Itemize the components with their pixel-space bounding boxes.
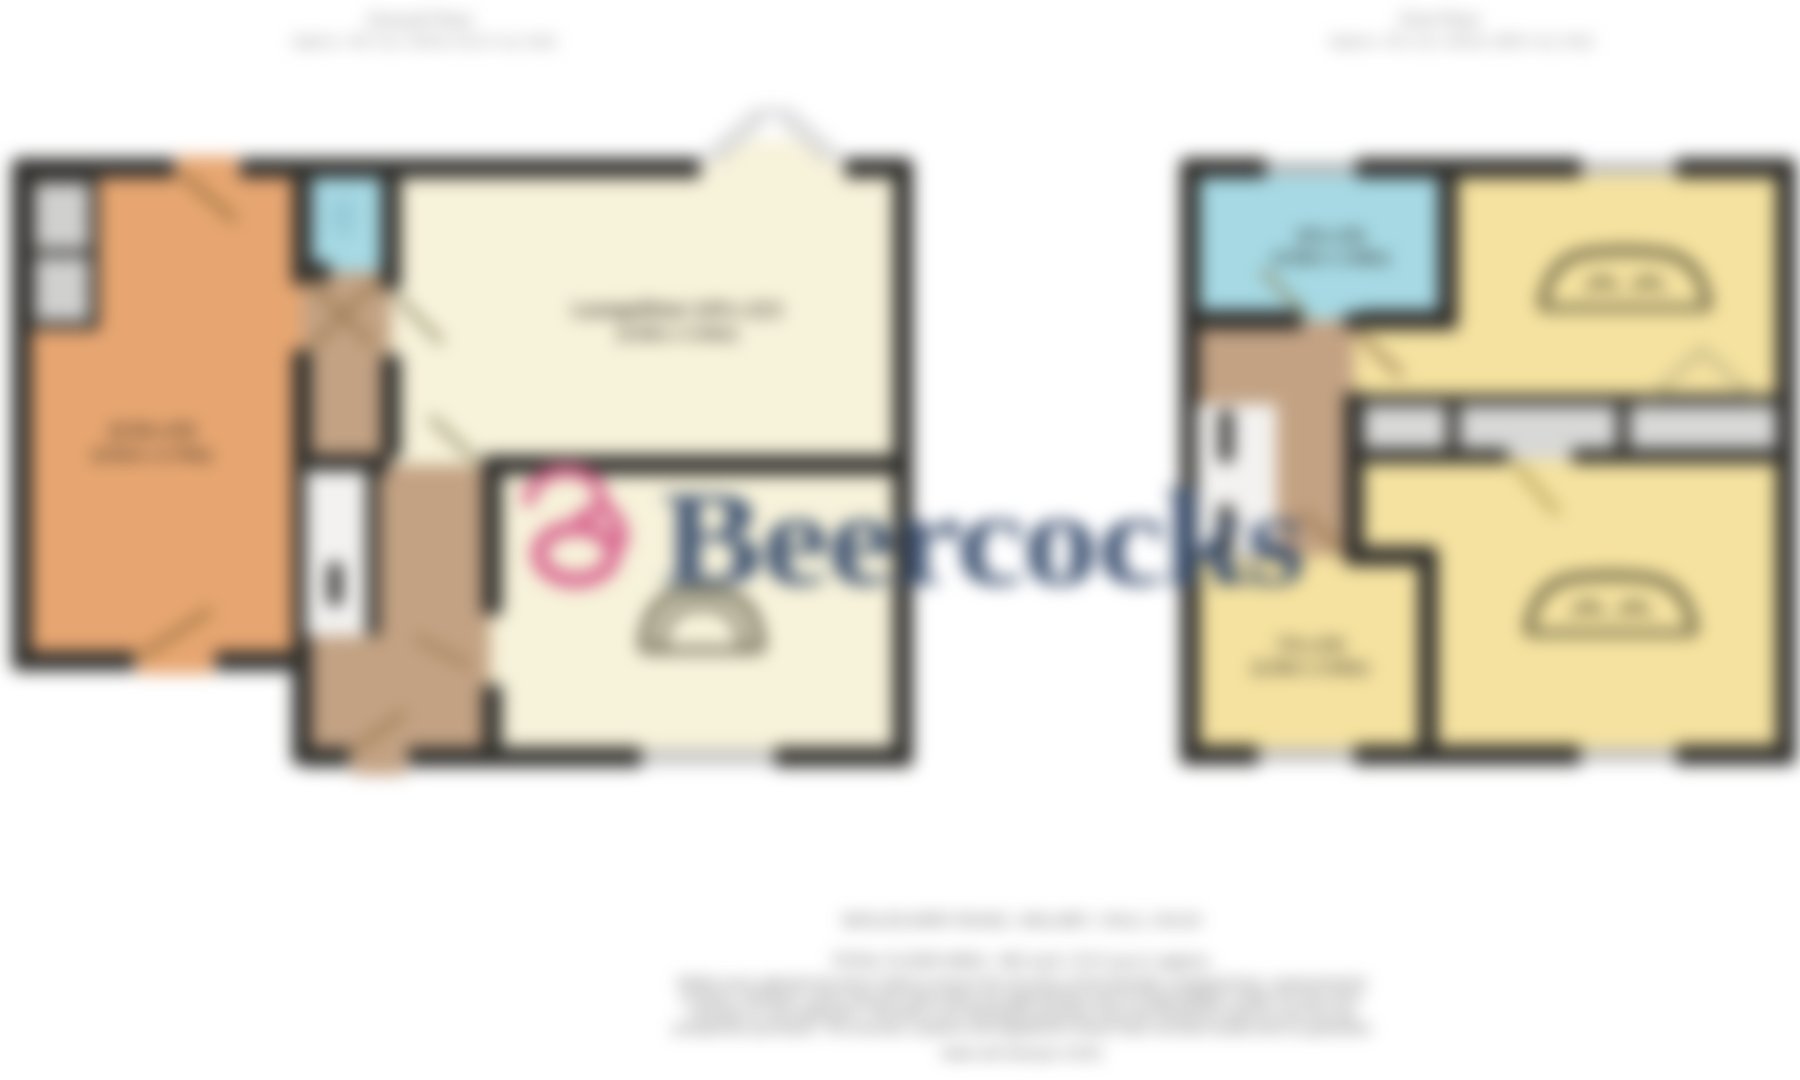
svg-text:(2.06m x 1.68m): (2.06m x 1.68m) [1273, 250, 1388, 267]
svg-text:(3.61m x 2.79m): (3.61m x 2.79m) [92, 447, 211, 464]
svg-text:Made with Metropix ©2025: Made with Metropix ©2025 [942, 1046, 1103, 1061]
svg-text:Beercocks: Beercocks [661, 464, 1303, 614]
svg-text:prospective purchaser. The ser: prospective purchaser. The services, sys… [673, 1021, 1371, 1037]
svg-text:6'9 x 5'6: 6'9 x 5'6 [1298, 226, 1365, 246]
svg-text:Approx. 38.3 sq. metres (412.5: Approx. 38.3 sq. metres (412.5 sq. feet) [292, 33, 556, 50]
svg-text:Ground Floor: Ground Floor [367, 10, 473, 30]
svg-text:Approx. 36.2 sq. metres (389.3: Approx. 36.2 sq. metres (389.3 sq. feet) [1329, 33, 1593, 50]
svg-text:of doors, windows, rooms and a: of doors, windows, rooms and any other i… [681, 991, 1362, 1007]
svg-text:11'10 x 9'2: 11'10 x 9'2 [108, 421, 196, 441]
svg-text:(4.50m x 3.40m): (4.50m x 3.40m) [617, 326, 736, 343]
svg-text:Lounge/Diner 14'9 x 11'2: Lounge/Diner 14'9 x 11'2 [573, 300, 782, 320]
svg-text:Whilst every attempt has been: Whilst every attempt has been made to en… [677, 976, 1367, 992]
svg-text:WOLDCARR ROAD, ANLABY, HULL HU: WOLDCARR ROAD, ANLABY, HULL HU10 [843, 911, 1202, 930]
svg-text:7'6 x 6'9: 7'6 x 6'9 [1277, 635, 1344, 655]
svg-text:First Floor: First Floor [1400, 10, 1481, 30]
svg-text:omission or mis-statement. Thi: omission or mis-statement. This plan is … [689, 1006, 1355, 1022]
svg-text:TOTAL FLOOR AREA : 802 sq.ft.: TOTAL FLOOR AREA : 802 sq.ft. (74.5 sq.m… [831, 953, 1213, 970]
svg-text:(2.29m x 2.06m): (2.29m x 2.06m) [1252, 660, 1367, 677]
